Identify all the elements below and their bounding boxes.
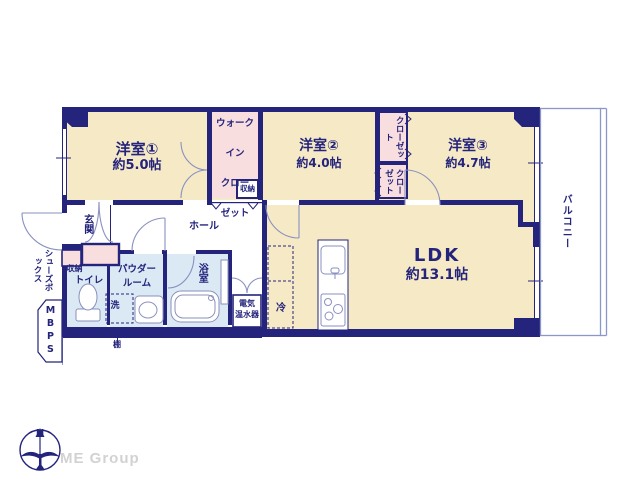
ldk-area: 約13.1帖 xyxy=(387,267,487,285)
logo-text: ME Group xyxy=(60,450,140,467)
bath-counter xyxy=(221,260,228,304)
closet-bottom-label: クローゼット xyxy=(381,166,406,197)
room2-area: 約4.0帖 xyxy=(279,156,359,171)
closet-top-label: クローゼット xyxy=(381,114,406,160)
room3-area: 約4.7帖 xyxy=(428,156,508,171)
floorplan: N 洋室① 約5.0帖 洋室② 約4.0帖 洋室③ 約4.7帖 LDK 約13.… xyxy=(0,0,640,480)
room1-area: 約5.0帖 xyxy=(97,158,177,174)
wic-line2: イン xyxy=(225,148,244,159)
toilet-tank xyxy=(76,309,100,321)
water-heater-label-2: 温水器 xyxy=(233,310,261,320)
toilet-label: トイレ xyxy=(70,275,108,287)
room1-name: 洋室① xyxy=(97,140,177,159)
shoes-box-label: シューズボックス xyxy=(30,245,54,295)
floorplan-graphics: N xyxy=(0,0,640,480)
hall-label: ホール xyxy=(178,221,230,234)
compass-north-label: N xyxy=(36,428,44,439)
entrance-label: 玄関 xyxy=(79,208,94,240)
water-heater-label-1: 電気 xyxy=(233,299,261,309)
powder-room-label-2: ルーム xyxy=(114,278,160,290)
wic-line4: ゼット xyxy=(221,208,250,219)
pipe-space-label: MBPS xyxy=(42,304,58,358)
wic-line1: ウォーク xyxy=(216,118,254,129)
bath-label: 浴室 xyxy=(194,258,208,288)
compass: N xyxy=(20,428,60,470)
entrance-storage-label: 収納 xyxy=(62,264,87,274)
balcony-label: バルコニー xyxy=(556,185,574,257)
fridge-label: 冷 xyxy=(272,303,290,316)
washer-label: 洗 xyxy=(108,301,122,312)
ldk-name: LDK xyxy=(397,245,477,268)
shelf-label: 棚 xyxy=(106,340,128,350)
powder-room-label-1: パウダー xyxy=(114,264,160,276)
wic-storage-label: 収納 xyxy=(237,184,258,193)
wic-label: ウォーク イン クロー ゼット xyxy=(211,116,259,221)
room2-name: 洋室② xyxy=(279,138,359,156)
room3-name: 洋室③ xyxy=(428,138,508,156)
toilet-bowl xyxy=(79,284,97,310)
